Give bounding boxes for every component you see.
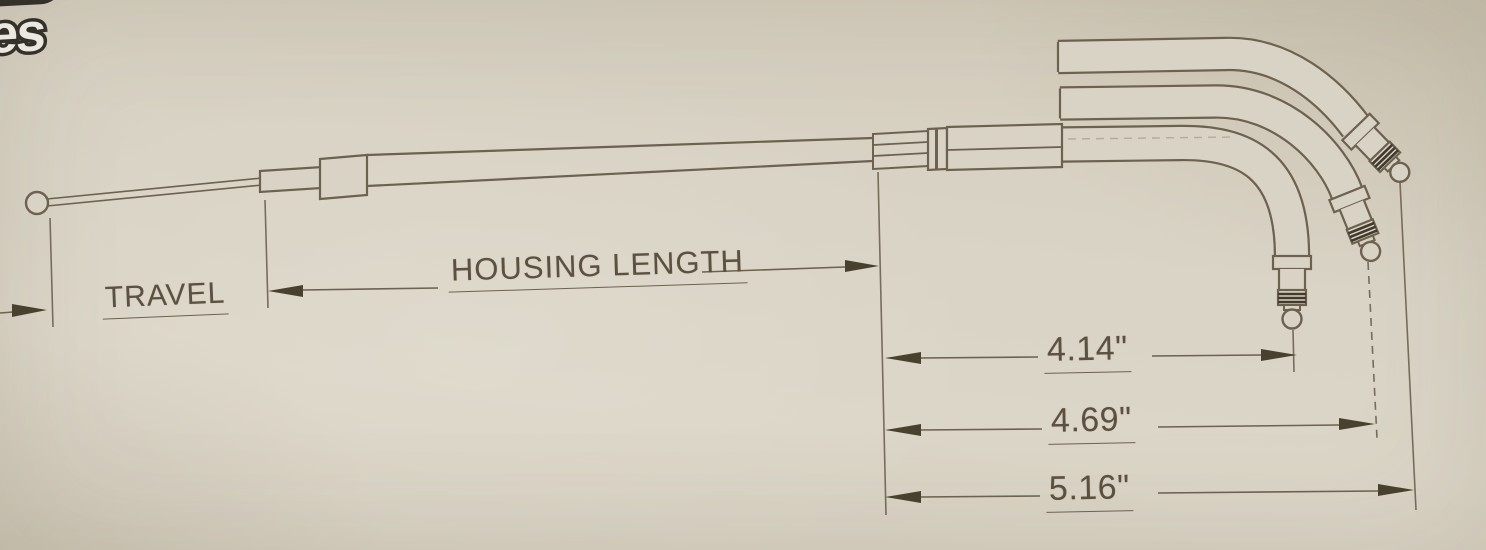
dim-line-short-right (1152, 355, 1262, 356)
dim-short-label: 4.14" (1044, 331, 1132, 373)
dim-line-travel-tail (0, 312, 13, 313)
inner-wire (47, 178, 262, 206)
photographed-catalog-page: { "page": { "background_color": "#d7d1c3… (0, 0, 1486, 550)
adjuster-collar (928, 128, 947, 170)
arrow-housing-right (845, 260, 879, 272)
elbow-fitting-short (1273, 256, 1311, 329)
extension-line-medium-dashed (1368, 262, 1377, 438)
elbow-fitting-medium (1329, 186, 1391, 267)
extension-lines (50, 172, 1416, 515)
dim-long-label: 5.16" (1046, 470, 1134, 512)
arrow-long-left (885, 491, 921, 503)
dim-medium-label: 4.69" (1048, 402, 1136, 444)
travel-label: TRAVEL (101, 277, 229, 319)
arrow-long-right (1378, 484, 1414, 496)
extension-line-travel-left (50, 218, 53, 327)
extension-line-travel-right (265, 200, 268, 308)
arrow-short-right (1261, 349, 1297, 361)
extension-line-housing-end (878, 172, 886, 515)
extension-line-long (1400, 182, 1416, 510)
dim-line-housing-left (303, 288, 438, 290)
arrow-travel-left (12, 304, 47, 317)
dim-line-long-right (1158, 491, 1378, 493)
extension-line-short (1293, 330, 1294, 372)
adjuster-barrel (947, 124, 1062, 170)
ball-end-short (1283, 310, 1302, 329)
cable-housing (367, 138, 873, 186)
dim-line-long-left (920, 496, 1040, 497)
arrow-short-left (885, 352, 921, 364)
dim-line-medium-right (1158, 425, 1339, 427)
dim-line-short-left (920, 357, 1038, 358)
arrow-medium-right (1339, 418, 1375, 430)
adjuster-threads (873, 131, 928, 169)
dim-line-medium-left (920, 429, 1042, 430)
housing-ferrule-small (260, 167, 322, 192)
arrow-medium-left (885, 424, 921, 436)
cable-end-barrel (26, 192, 48, 214)
arrow-housing-left (268, 285, 303, 297)
housing-ferrule-large (320, 155, 367, 199)
housing-bend (1062, 137, 1292, 256)
